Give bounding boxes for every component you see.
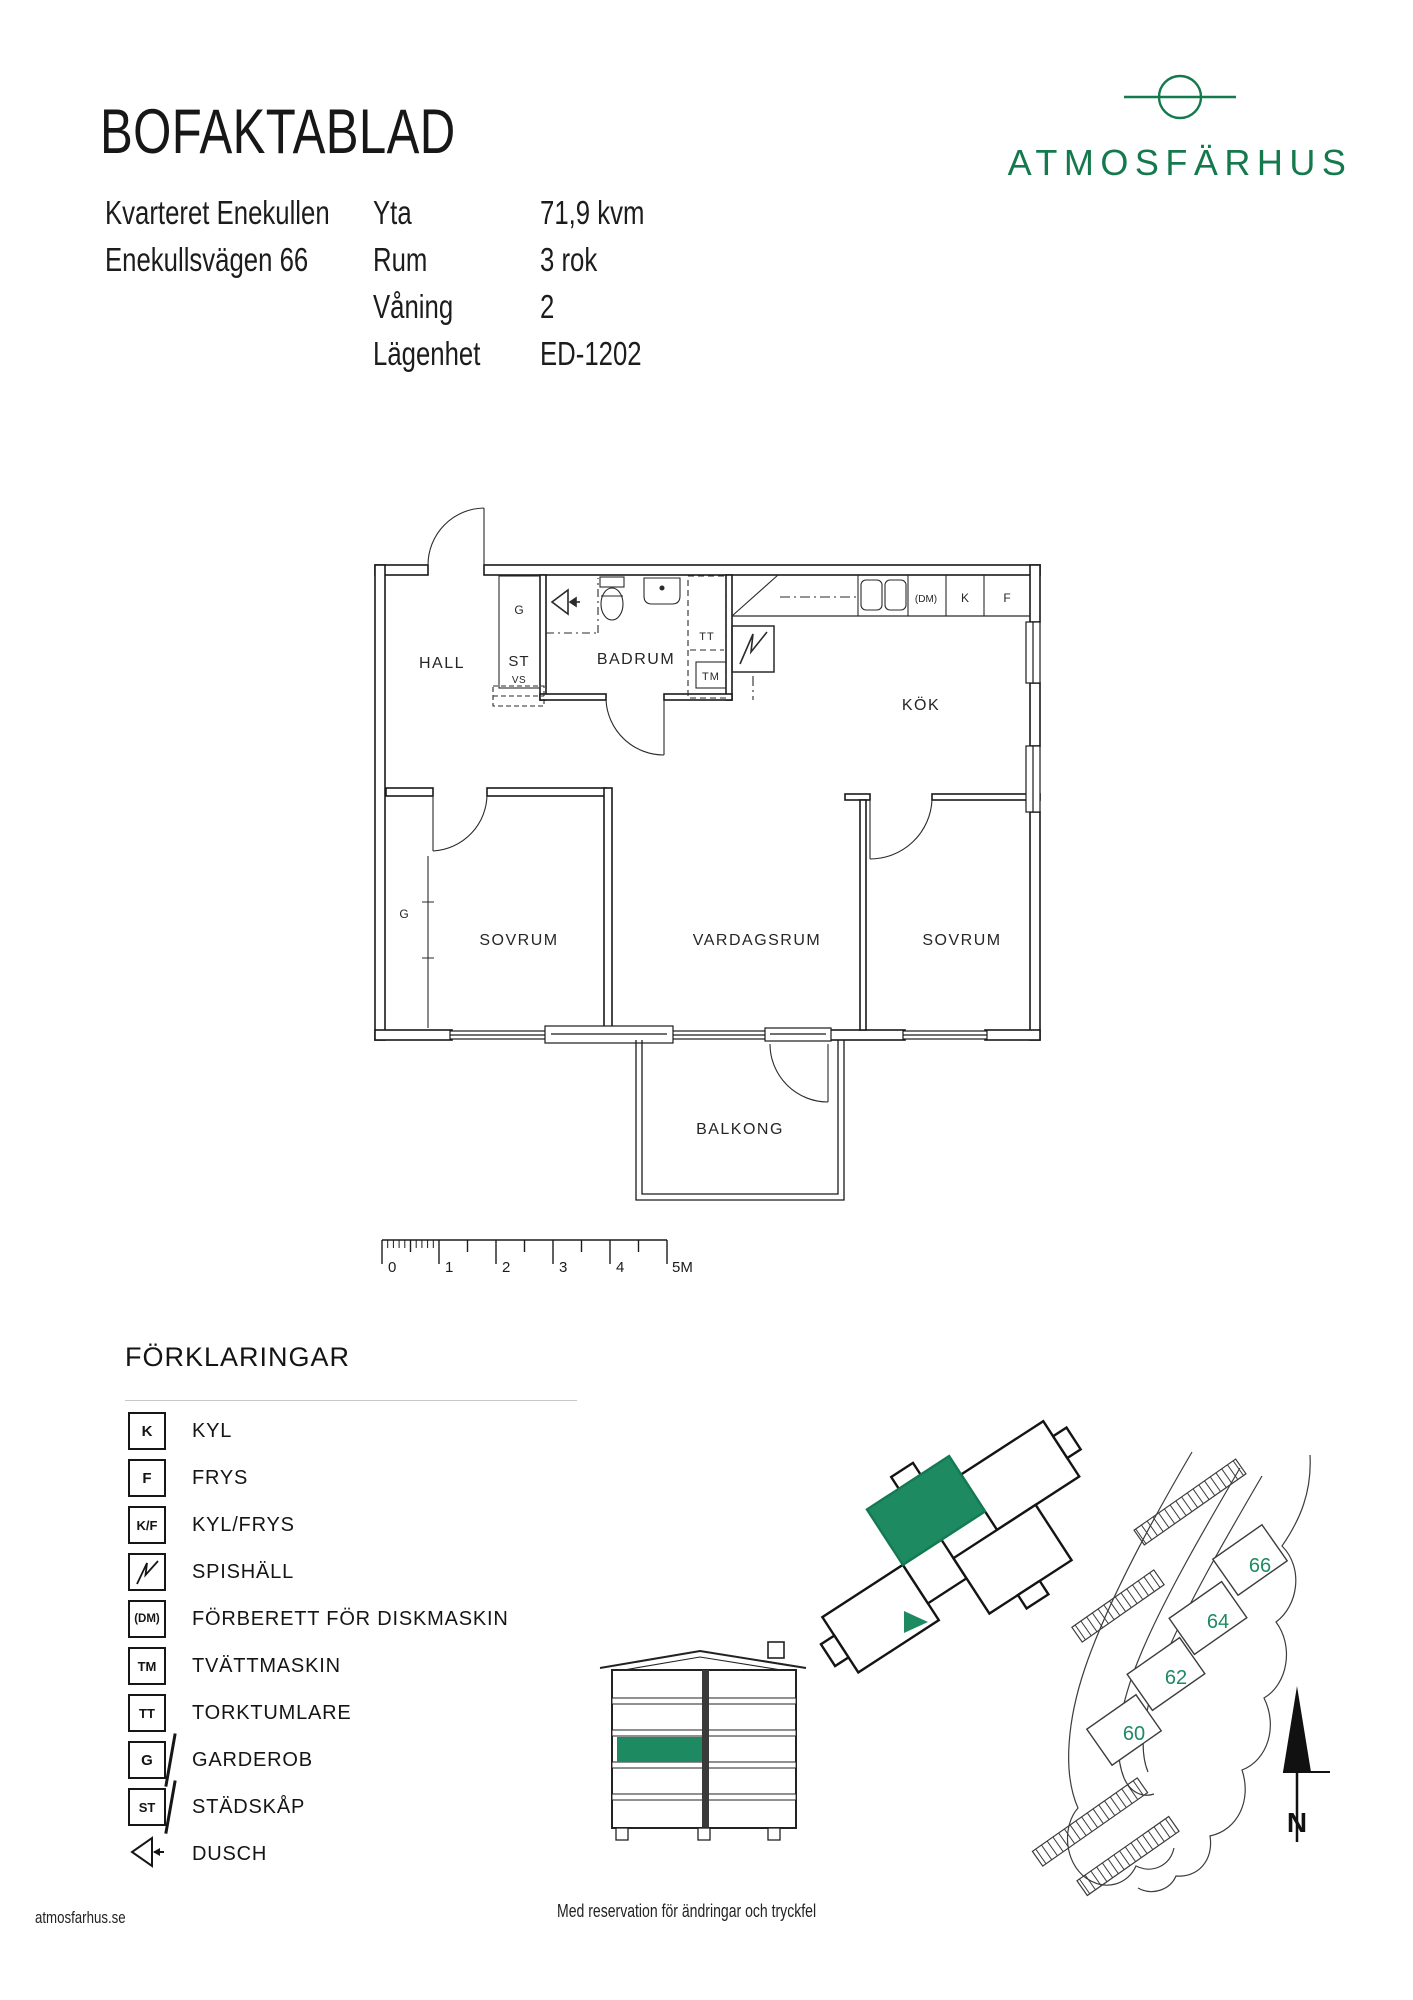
shower-icon — [552, 590, 580, 614]
stadskap-symbol: ST — [128, 1788, 166, 1826]
scale-tick-2: 2 — [502, 1259, 510, 1276]
highlighted-floor — [617, 1737, 702, 1762]
label-closet-vs: VS — [512, 675, 526, 686]
legend: K KYL F FRYS K/F KYL/FRYS SPISHÄLL (DM) … — [128, 1412, 509, 1882]
website-text: atmosfarhus.se — [35, 1908, 126, 1928]
label-tm: TM — [702, 671, 720, 683]
shower-enclosure — [546, 578, 598, 633]
north-arrow-icon: N — [1283, 1686, 1330, 1842]
room-label-balkong: BALKONG — [696, 1121, 784, 1138]
toilet-icon — [600, 577, 624, 620]
legend-label-stadskap: STÄDSKÅP — [192, 1796, 305, 1819]
room-label-sovrum-left: SOVRUM — [479, 932, 558, 949]
kitchen-fittings — [732, 575, 1030, 700]
legend-label-torktumlare: TORKTUMLARE — [192, 1702, 352, 1725]
kyl-symbol: K — [128, 1412, 166, 1450]
legend-label-kylfrys: KYL/FRYS — [192, 1514, 295, 1537]
room-label-hall: HALL — [419, 655, 465, 672]
legend-label-kyl: KYL — [192, 1420, 232, 1443]
spishall-hob-icon — [128, 1553, 166, 1591]
building-section-diagram — [600, 1642, 806, 1840]
scale-tick-0: 0 — [388, 1259, 396, 1276]
scale-tick-3: 3 — [559, 1259, 567, 1276]
scale-end-label: 5M — [672, 1259, 693, 1276]
scale-tick-1: 1 — [445, 1259, 453, 1276]
legend-row-stadskap: ST STÄDSKÅP — [128, 1788, 509, 1826]
scale-tick-labels: 0 1 2 3 4 5M — [388, 1259, 693, 1276]
legend-row-kylfrys: K/F KYL/FRYS — [128, 1506, 509, 1544]
building-number-60: 60 — [1123, 1723, 1145, 1745]
kylfrys-symbol: K/F — [128, 1506, 166, 1544]
room-label-vardagsrum: VARDAGSRUM — [693, 932, 822, 949]
balcony-outline — [636, 1040, 844, 1200]
building-number-64: 64 — [1207, 1611, 1229, 1633]
legend-label-spishall: SPISHÄLL — [192, 1561, 294, 1584]
label-dm: (DM) — [915, 594, 937, 605]
garderob-symbol: G — [128, 1741, 166, 1779]
sink-left — [861, 580, 882, 610]
scale-bar: 0 1 2 3 4 5M — [382, 1240, 693, 1276]
legend-label-frys: FRYS — [192, 1467, 248, 1490]
floorplan: HALL BADRUM KÖK SOVRUM VARDAGSRUM SOVRUM… — [375, 508, 1040, 1200]
sink-right — [885, 580, 906, 610]
building-number-66: 66 — [1249, 1555, 1271, 1577]
room-label-kok: KÖK — [902, 696, 940, 714]
legend-row-garderob: G GARDEROB — [128, 1741, 509, 1779]
dm-symbol: (DM) — [128, 1600, 166, 1638]
label-closet-g: G — [514, 603, 523, 617]
label-closet-st: ST — [508, 653, 529, 670]
legend-label-dusch: DUSCH — [192, 1843, 267, 1866]
legend-divider — [125, 1400, 577, 1401]
hall-closet — [493, 576, 544, 706]
legend-label-diskmaskin: FÖRBERETT FÖR DISKMASKIN — [192, 1608, 509, 1631]
dusch-shower-icon — [128, 1835, 166, 1874]
site-map: 66 64 62 60 — [1032, 1452, 1310, 1895]
scale-tick-4: 4 — [616, 1259, 624, 1276]
label-f: F — [1003, 591, 1010, 605]
label-wardrobe-g: G — [399, 907, 408, 921]
tt-symbol: TT — [128, 1694, 166, 1732]
legend-row-dusch: DUSCH — [128, 1835, 509, 1873]
website-link[interactable]: atmosfarhus.se — [35, 1908, 151, 1928]
bedroom-wardrobe — [422, 856, 434, 1028]
room-label-badrum: BADRUM — [597, 651, 675, 668]
legend-row-tvattmaskin: TM TVÄTTMASKIN — [128, 1647, 509, 1685]
room-label-sovrum-right: SOVRUM — [922, 932, 1001, 949]
room-labels: HALL BADRUM KÖK SOVRUM VARDAGSRUM SOVRUM… — [399, 591, 1010, 1138]
windows — [450, 622, 1040, 1043]
atmosfarhus-logo: ATMOSFÄRHUS — [1008, 76, 1353, 183]
legend-row-frys: F FRYS — [128, 1459, 509, 1497]
frys-symbol: F — [128, 1459, 166, 1497]
disclaimer: Med reservation för ändringar och tryckf… — [557, 1901, 889, 1922]
tm-symbol: TM — [128, 1647, 166, 1685]
legend-title: FÖRKLARINGAR — [125, 1342, 350, 1373]
legend-row-diskmaskin: (DM) FÖRBERETT FÖR DISKMASKIN — [128, 1600, 509, 1638]
north-label: N — [1287, 1807, 1307, 1838]
label-k: K — [961, 591, 969, 605]
sink-icon — [644, 578, 680, 604]
logo-wordmark: ATMOSFÄRHUS — [1008, 142, 1353, 183]
building-number-62: 62 — [1165, 1667, 1187, 1689]
legend-row-spishall: SPISHÄLL — [128, 1553, 509, 1591]
legend-row-kyl: K KYL — [128, 1412, 509, 1450]
disclaimer-text: Med reservation för ändringar och tryckf… — [557, 1901, 816, 1922]
label-tt: TT — [699, 631, 714, 643]
building-position-diagram — [765, 1382, 1137, 1713]
bofaktablad-page: BOFAKTABLAD Kvarteret Enekullen Enekulls… — [0, 0, 1413, 2000]
legend-row-torktumlare: TT TORKTUMLARE — [128, 1694, 509, 1732]
legend-label-tvattmaskin: TVÄTTMASKIN — [192, 1655, 341, 1678]
hob-icon — [740, 632, 767, 664]
logo-globe-icon — [1124, 76, 1236, 118]
legend-label-garderob: GARDEROB — [192, 1749, 313, 1772]
